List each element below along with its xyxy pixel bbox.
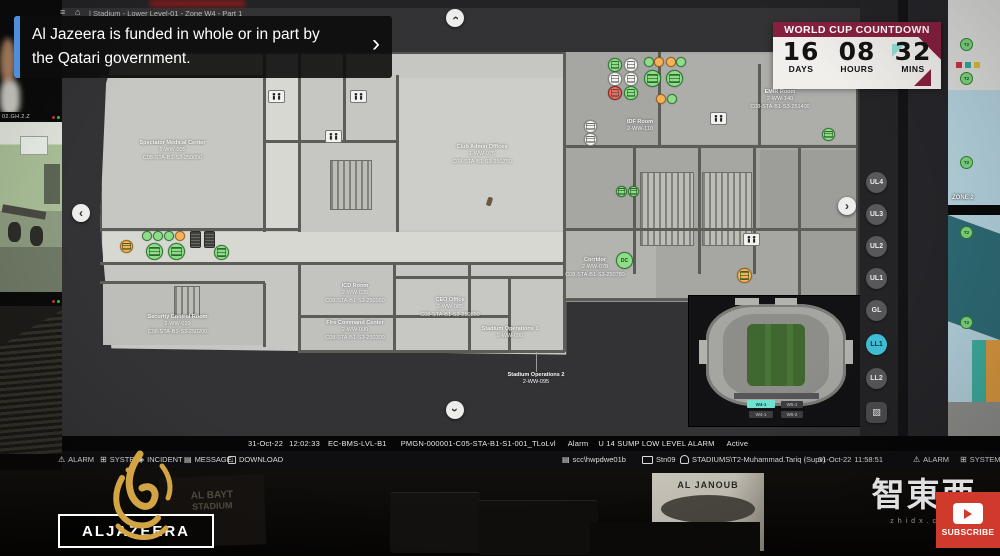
toolbar-right-system[interactable]: ⊞SYSTEM: [960, 455, 1000, 464]
equipment-glyph: [627, 75, 636, 83]
equipment-glyph: [630, 188, 637, 195]
restroom-persons-icon: [712, 114, 725, 123]
t2-zone-marker[interactable]: T2: [960, 316, 973, 329]
stand-block: [775, 298, 797, 305]
equipment-glyph: [611, 61, 620, 69]
equipment-panel-icon[interactable]: [190, 231, 201, 248]
toolbar-separator: |: [804, 455, 806, 464]
desk-monitor-back: [478, 500, 598, 555]
status-badge-icon[interactable]: [656, 94, 666, 104]
t2-zone-marker[interactable]: T2: [960, 38, 973, 51]
cctv-title-bar: 02.GH.2.Z: [0, 112, 62, 122]
equipment-glyph: [217, 248, 226, 257]
status-date: 31-Oct-22: [248, 439, 283, 448]
restroom-icon: [350, 90, 367, 103]
level-button-ll2[interactable]: LL2: [866, 368, 887, 389]
wall-segment: [263, 283, 266, 347]
equipment-panel-icon[interactable]: [204, 231, 215, 248]
wall-segment: [563, 145, 856, 148]
room-label-emir-room: EMIR Room 2-WW-140 C08-STA-B1-S3-251400: [715, 89, 845, 111]
chevron-right-icon: ›: [845, 199, 849, 213]
stand-walkway: [734, 393, 819, 399]
cctv-desk: [2, 204, 47, 220]
wall-segment: [100, 262, 565, 265]
equipment-glyph: [669, 74, 679, 84]
toolbar-message[interactable]: ▤MESSAGE: [184, 455, 232, 464]
banner-accent-bar: [14, 16, 20, 78]
equipment-glyph: [627, 89, 636, 97]
countdown-hours: 08: [829, 39, 884, 64]
status-indicator-icon: [57, 300, 60, 303]
monitor-icon: [642, 456, 653, 464]
status-badge-icon[interactable]: [667, 94, 677, 104]
system-icon: ⊞: [960, 455, 967, 464]
restroom-persons-icon: [327, 132, 340, 141]
room-label-security-control: Security Control Room 2-WW-020 C08-STA-B…: [115, 314, 240, 336]
cctv-chair: [8, 222, 21, 242]
equipment-status-icon[interactable]: [624, 58, 638, 72]
status-badge-icon[interactable]: [676, 57, 686, 67]
toolbar-download[interactable]: ↓DOWNLOAD: [228, 455, 283, 464]
equipment-status-icon[interactable]: [168, 243, 185, 260]
zone-pill-w4-1-active[interactable]: W4-1: [747, 400, 775, 408]
level-button-ll1[interactable]: LL1: [866, 334, 887, 355]
leader-line: [536, 352, 537, 372]
room-label-stadium-ops-1: Stadium Operations 1 2-WW-090: [455, 326, 565, 341]
zone-pill-w5-1[interactable]: W5-1: [781, 401, 803, 408]
room-label-corridor: Corridor 2-WW-078 C08-STA-B1-S3-250780: [540, 257, 650, 279]
cctv-title-bar: [0, 296, 62, 306]
restroom-persons-icon: [352, 92, 365, 101]
mini-tile: [956, 62, 962, 68]
room-label-stadium-ops-2: Stadium Operations 2 2-WW-095: [475, 372, 597, 387]
countdown-days-label: DAYS: [773, 64, 828, 74]
equipment-status-icon[interactable]: [608, 58, 622, 72]
wall-segment: [298, 350, 565, 353]
equipment-status-icon[interactable]: [822, 128, 835, 141]
stand-block: [699, 340, 707, 364]
stadium-minimap[interactable]: W4-1 W5-1 W4-1 W5-2: [688, 295, 862, 427]
download-icon: ↓: [228, 456, 236, 464]
status-badge-icon[interactable]: [644, 57, 654, 67]
room-label-idf-room: IDF Room 2-WW-110: [600, 119, 680, 134]
zone-pill-w4-1[interactable]: W4-1: [749, 411, 773, 418]
desk-monitor-back: [390, 492, 480, 553]
zone-pill-w5-2[interactable]: W5-2: [781, 411, 803, 418]
chevron-left-icon: ‹: [79, 206, 83, 220]
annotate-button[interactable]: ▨: [866, 402, 887, 423]
restroom-icon: [743, 233, 760, 246]
zone-gray-bottom: [948, 402, 1000, 437]
person-shirt: [0, 80, 20, 116]
equipment-status-icon[interactable]: [616, 186, 627, 197]
equipment-status-icon[interactable]: [624, 72, 638, 86]
equipment-status-icon[interactable]: [584, 133, 597, 146]
status-time: 12:02:33: [289, 439, 320, 448]
toolbar-station: Stn09: [642, 455, 676, 464]
zone-2-label: ZONE 2: [952, 195, 974, 201]
equipment-status-icon[interactable]: [608, 86, 622, 100]
restroom-persons-icon: [270, 92, 283, 101]
toolbar-datetime: 31-Oct-22 11:58:51: [818, 455, 883, 464]
countdown-days: 16: [773, 39, 828, 64]
cctv-feed-office: 02.GH.2.Z: [0, 112, 62, 292]
zone-2-bar: [948, 205, 1000, 215]
mini-tile: [965, 62, 971, 68]
alarm-status-line: 31-Oct-22 12:02:33 EC-BMS-LVL-B1 PMGN-00…: [62, 436, 1000, 451]
t2-zone-marker[interactable]: T2: [960, 156, 973, 169]
equipment-status-icon[interactable]: [666, 70, 683, 87]
desk-monitor-back: [590, 522, 760, 556]
status-badge-icon[interactable]: [164, 231, 174, 241]
banner-text: Al Jazeera is funded in whole or in part…: [14, 17, 354, 77]
user-icon: [680, 455, 689, 464]
cctv-cabinet: [44, 164, 60, 204]
equipment-status-icon[interactable]: [120, 240, 133, 253]
mini-tile: [974, 62, 980, 68]
status-message: U 14 SUMP LOW LEVEL ALARM: [598, 439, 714, 448]
status-indicator-icon: [57, 116, 60, 119]
play-icon: [964, 509, 972, 519]
level-button-gl[interactable]: GL: [866, 300, 887, 321]
pen-icon: ▨: [872, 407, 881, 418]
equipment-status-icon[interactable]: [644, 70, 661, 87]
status-source: EC-BMS-LVL-B1: [328, 439, 387, 448]
t2-zone-marker[interactable]: T2: [960, 72, 973, 85]
stand-block: [735, 298, 759, 305]
youtube-tv-icon: [953, 503, 983, 524]
stairs-hatch: [330, 160, 372, 210]
room-label-club-admin: Club Admin Offices 1-WW-075 C08-STA-B1-S…: [408, 144, 556, 166]
headline-smudge: [150, 0, 245, 7]
cctv-whiteboard: [20, 136, 48, 155]
world-cup-countdown: WORLD CUP COUNTDOWN 16 DAYS 08 HOURS 32 …: [773, 22, 941, 87]
stand-block: [845, 340, 853, 364]
equipment-status-icon[interactable]: [608, 72, 622, 86]
restroom-icon: [268, 90, 285, 103]
wall-segment: [100, 281, 265, 284]
status-type: Alarm: [568, 439, 589, 448]
aljazeera-calligraphy-icon: [92, 448, 187, 548]
equipment-glyph: [611, 89, 620, 97]
stand-rows: [0, 310, 62, 454]
wall-segment: [633, 148, 636, 274]
pan-right-button[interactable]: ›: [838, 197, 856, 215]
equipment-status-icon[interactable]: [214, 245, 229, 260]
stairs-hatch: [640, 172, 694, 246]
wall-segment: [753, 148, 756, 274]
room-label-icd-room: ICD Room 2-WW-035 C08-STA-B1-S3-250950: [300, 283, 410, 305]
wall-segment: [563, 228, 856, 231]
countdown-hours-label: HOURS: [829, 64, 884, 74]
toolbar-right-alarm[interactable]: ⚠ALARM: [913, 455, 949, 464]
pan-left-button[interactable]: ‹: [72, 204, 90, 222]
room-label-ceo-office: CEO Office 2-WW-085 C08-STA-B1-S3-250850: [395, 297, 505, 319]
level-button-ul2[interactable]: UL2: [866, 236, 887, 257]
status-badge-icon[interactable]: [666, 57, 676, 67]
chevron-up-icon: ›: [448, 16, 462, 20]
room-label-fire-command: Fire Command Center 2-WW-090 C08-STA-B1-…: [280, 320, 430, 342]
zone-orange-strip: [986, 340, 1000, 402]
server-icon: ▤: [562, 455, 570, 464]
equipment-status-icon[interactable]: [737, 268, 752, 283]
room-label-spectator-medical: Spectator Medical Center 1-WW-005 C08-ST…: [105, 140, 240, 162]
cctv-feed-stands: [0, 296, 62, 454]
restroom-icon: [710, 112, 727, 125]
level-button-ul3[interactable]: UL3: [866, 204, 887, 225]
room-area: [760, 150, 856, 228]
equipment-glyph: [586, 123, 594, 131]
countdown-title: WORLD CUP COUNTDOWN: [773, 22, 941, 37]
record-indicator-icon: [52, 116, 55, 119]
equipment-glyph: [122, 243, 130, 251]
equipment-glyph: [740, 271, 749, 280]
equipment-status-icon[interactable]: [146, 243, 163, 260]
status-badge-icon[interactable]: [142, 231, 152, 241]
t2-zone-marker[interactable]: T2: [960, 226, 973, 239]
pan-up-button[interactable]: ›: [446, 9, 464, 27]
stadium-pitch: [747, 324, 805, 386]
wall-segment: [563, 52, 566, 352]
status-point-id: PMGN-000001-C05-STA-B1-S1-001_TLoLvl: [401, 439, 556, 448]
chevron-down-icon: ›: [448, 408, 462, 412]
restroom-persons-icon: [745, 235, 758, 244]
pan-down-button[interactable]: ›: [446, 401, 464, 419]
alarm-icon: ⚠: [913, 455, 920, 464]
equipment-glyph: [611, 75, 620, 83]
status-badge-icon[interactable]: [654, 57, 664, 67]
equipment-status-icon[interactable]: [624, 86, 638, 100]
toolbar-server: ▤scc\hwpdwe01b: [562, 455, 626, 464]
zone-teal-strip: [972, 340, 986, 402]
cctv-chair: [30, 226, 43, 246]
toolbar-alarm[interactable]: ⚠ALARM: [58, 455, 94, 464]
banner-expand-chevron[interactable]: ›: [372, 30, 380, 58]
stairs-hatch: [174, 286, 200, 316]
restroom-icon: [325, 130, 342, 143]
zone-dark-shape: [948, 215, 1000, 340]
countdown-mins: 32: [885, 39, 940, 64]
countdown-mins-label: MINS: [885, 64, 940, 74]
status-state: Active: [727, 439, 749, 448]
equipment-glyph: [171, 247, 181, 257]
equipment-status-icon[interactable]: [628, 186, 639, 197]
funding-disclaimer-banner: Al Jazeera is funded in whole or in part…: [14, 16, 392, 78]
cctv-camera-label: 02.GH.2.Z: [2, 114, 30, 120]
room-area: [801, 230, 856, 298]
level-button-ul4[interactable]: UL4: [866, 172, 887, 193]
record-indicator-icon: [52, 300, 55, 303]
equipment-glyph: [149, 247, 159, 257]
equipment-glyph: [647, 74, 657, 84]
wall-segment: [798, 148, 801, 298]
aljazeera-logo: [92, 448, 187, 553]
wall-segment: [698, 148, 701, 274]
equipment-status-icon[interactable]: [584, 120, 597, 133]
equipment-glyph: [586, 136, 594, 144]
equipment-glyph: [627, 61, 636, 69]
right-screen-light-top: [948, 0, 1000, 90]
equipment-glyph: [618, 188, 625, 195]
status-badge-icon[interactable]: [153, 231, 163, 241]
level-button-ul1[interactable]: UL1: [866, 268, 887, 289]
countdown-body: 16 DAYS 08 HOURS 32 MINS: [773, 37, 941, 89]
equipment-glyph: [824, 131, 832, 139]
wall-segment: [396, 75, 399, 232]
poster-stadium-graphic: [661, 495, 755, 523]
status-badge-icon[interactable]: [175, 231, 185, 241]
alarm-icon: ⚠: [58, 455, 65, 464]
subscribe-button[interactable]: SUBSCRIBE: [936, 492, 1000, 548]
